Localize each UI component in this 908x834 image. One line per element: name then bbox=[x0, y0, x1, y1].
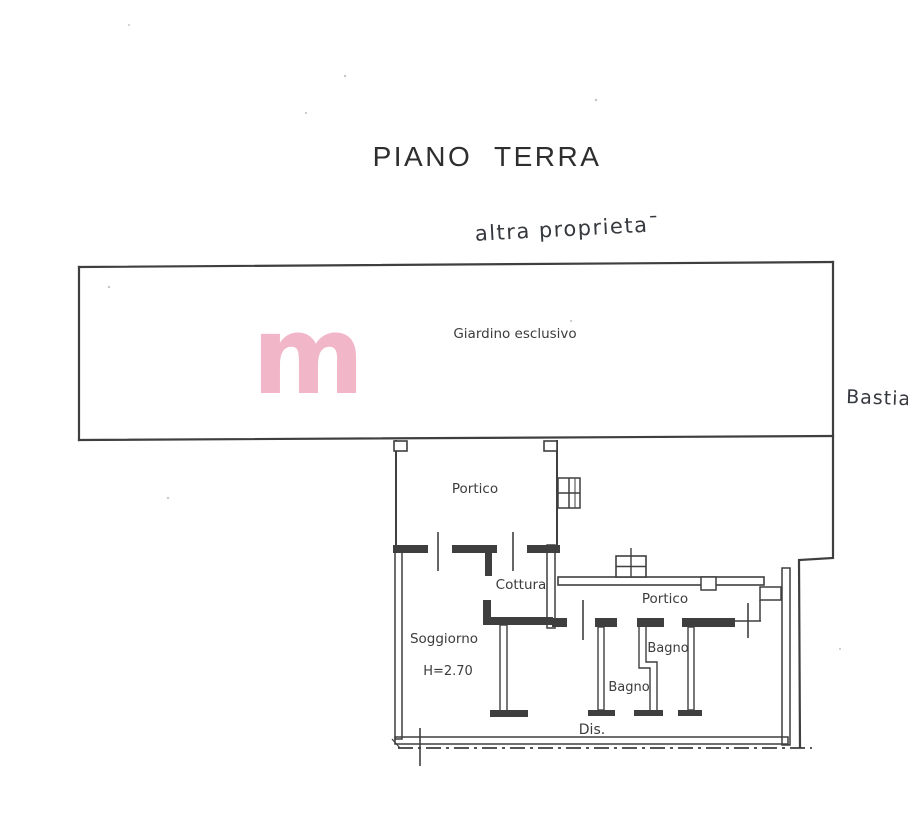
page-title: PIANO TERRA bbox=[373, 141, 602, 172]
wall-portico-soggiorno bbox=[393, 545, 560, 576]
room-label-dis: Dis. bbox=[579, 722, 605, 738]
window-grid-upper-icon bbox=[558, 478, 580, 508]
handwritten-note-altra-proprieta: altra proprieta¯ bbox=[474, 212, 661, 246]
soggiorno-outer-walls bbox=[392, 548, 788, 748]
room-label-bagno-right: Bagno bbox=[647, 641, 688, 656]
room-height-note: H=2.70 bbox=[423, 664, 473, 679]
handwritten-note-bastia: Bastia bbox=[846, 386, 908, 410]
room-label-portico-upper: Portico bbox=[452, 481, 498, 497]
interior-wall-cottura-dis bbox=[490, 625, 528, 717]
scanned-floor-plan-page: m bbox=[0, 0, 908, 834]
room-label-giardino: Giardino esclusivo bbox=[453, 326, 576, 342]
room-label-portico-right: Portico bbox=[642, 591, 688, 607]
floor-plan-drawing: m bbox=[0, 0, 908, 834]
watermark-m: m bbox=[252, 294, 365, 419]
room-label-bagno-left: Bagno bbox=[608, 680, 649, 695]
wall-portico-bagni bbox=[552, 618, 735, 627]
room-label-cottura: Cottura bbox=[496, 577, 547, 593]
room-label-soggiorno: Soggiorno bbox=[410, 631, 478, 647]
